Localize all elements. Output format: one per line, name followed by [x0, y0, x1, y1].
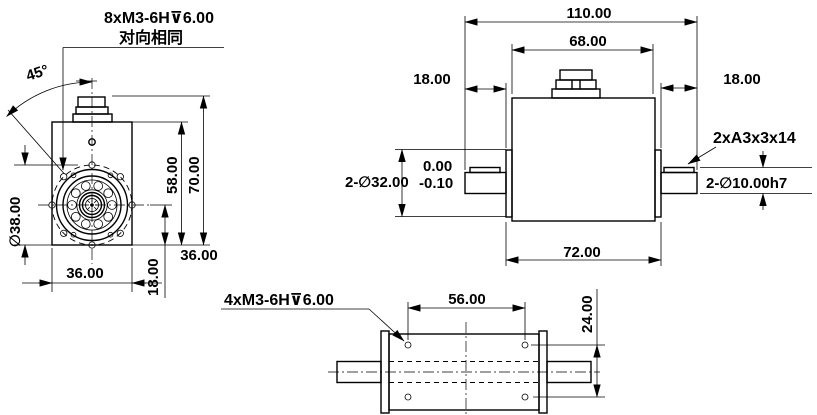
bottom-view-centerlines	[328, 322, 600, 415]
boss-tolerance-lower: -0.10	[419, 175, 453, 192]
side-body-bottom-dim: 72.00	[563, 244, 601, 261]
side-total-length-dim: 110.00	[566, 5, 611, 22]
front-view-centerlines	[38, 78, 150, 264]
boss-diameter-dim: 2-∅32.00	[345, 174, 409, 191]
bottom-thread-callout	[221, 309, 404, 341]
bottom-view: 56.00 24.00 4xM3-6H⊽6.00	[221, 289, 605, 415]
side-shaft-right-dim: 18.00	[723, 71, 761, 88]
front-body-height-dim: 58.00	[164, 156, 181, 194]
front-width-dim: 36.00	[66, 265, 104, 282]
key-callout	[688, 147, 716, 164]
front-bolt-circle-dim: ∅38.00	[7, 197, 24, 247]
front-thread-label: 8xM3-6H⊽6.00	[104, 10, 214, 27]
bottom-thread-label: 4xM3-6H⊽6.00	[224, 292, 334, 309]
front-thread-note: 对向相同	[119, 28, 183, 47]
front-center-offset-dim: 18.00	[145, 258, 162, 296]
technical-drawing: 8xM3-6H⊽6.00 对向相同 45° ∅38.00 58	[0, 0, 817, 415]
front-total-height-dim: 70.00	[186, 156, 203, 194]
side-shaft-dimensions	[465, 83, 697, 148]
side-body-top-dimension	[512, 44, 653, 94]
boss-tolerance-upper: 0.00	[423, 158, 452, 175]
side-view-body-outline	[465, 70, 697, 221]
front-view: 8xM3-6H⊽6.00 对向相同 45° ∅38.00 58	[7, 10, 224, 298]
technical-drawing-canvas: 8xM3-6H⊽6.00 对向相同 45° ∅38.00 58	[0, 0, 817, 415]
bottom-hole-spacing-h-dim: 56.00	[448, 291, 486, 308]
bottom-hole-spacing-v-dim: 24.00	[579, 295, 596, 333]
side-view: 110.00 68.00 18.00 18.00 2xA3x3x14	[345, 5, 812, 266]
side-body-top-dim: 68.00	[569, 33, 607, 50]
front-square-dim: 36.00	[180, 247, 218, 264]
front-thread-callout	[63, 48, 224, 171]
shaft-diameter-dim: 2-∅10.00h7	[706, 175, 787, 192]
key-label: 2xA3x3x14	[713, 130, 796, 147]
front-angle-dim: 45°	[24, 62, 51, 85]
side-shaft-left-dim: 18.00	[413, 71, 451, 88]
